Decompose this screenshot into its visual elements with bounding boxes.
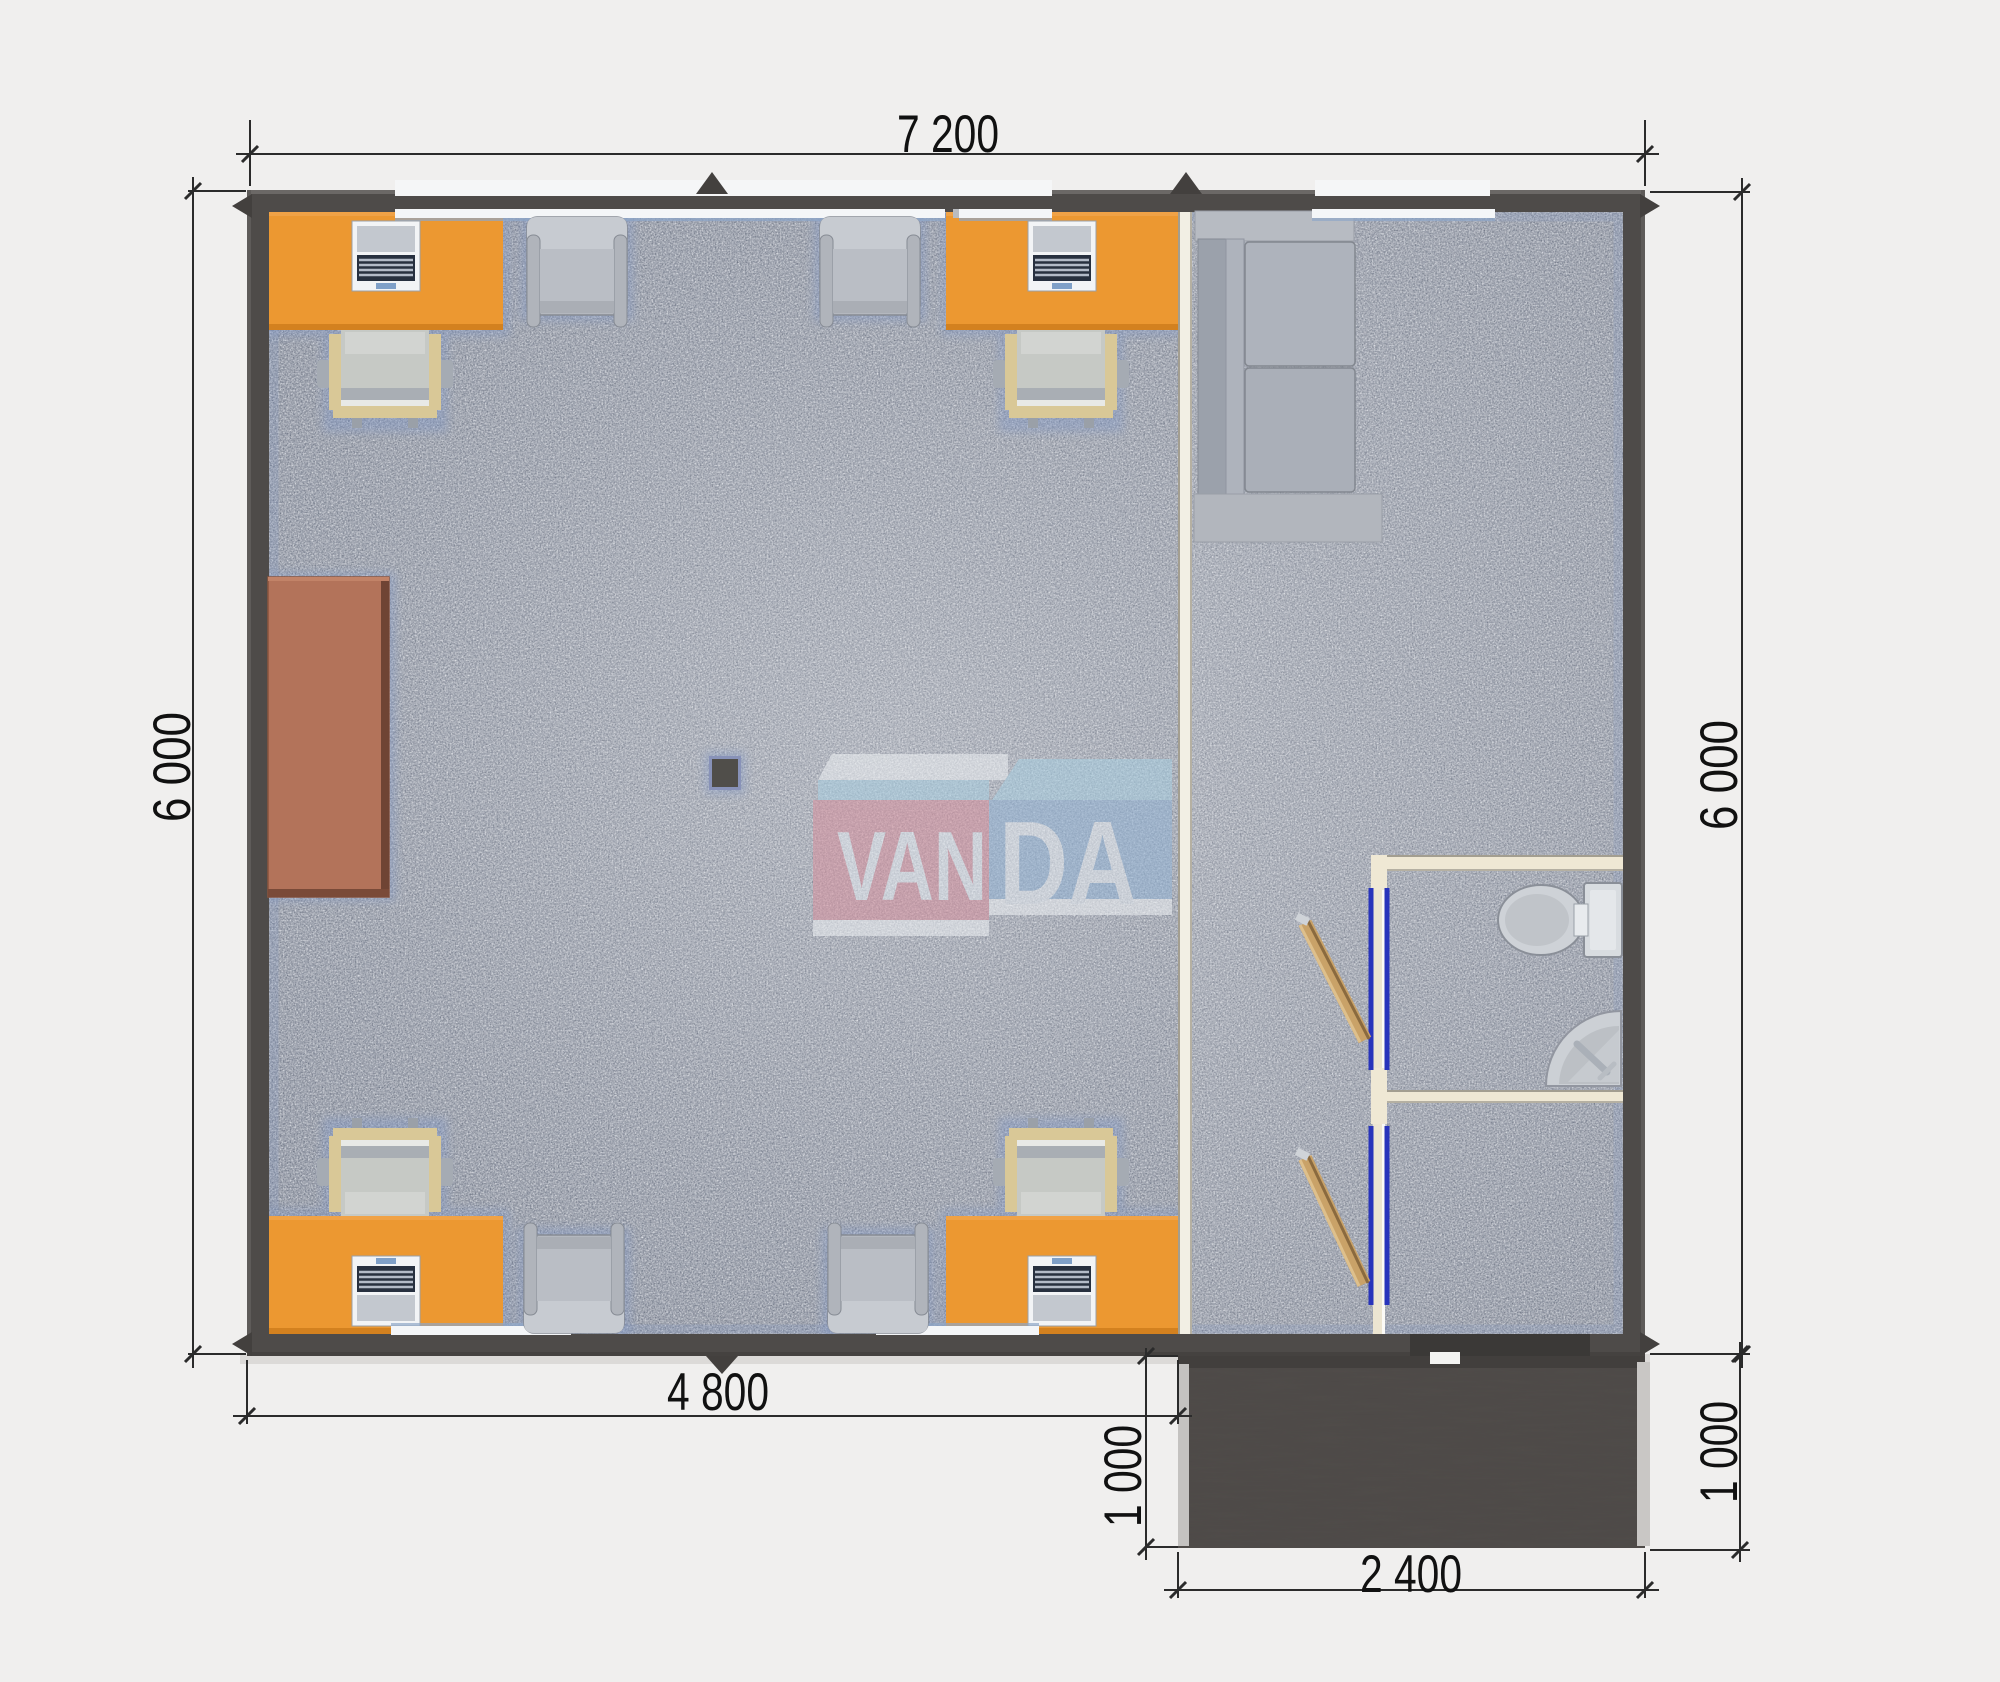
svg-text:VAN: VAN <box>837 811 987 921</box>
svg-text:1 000: 1 000 <box>1094 1425 1153 1527</box>
svg-text:6 000: 6 000 <box>143 712 202 822</box>
svg-text:2 400: 2 400 <box>1360 1545 1462 1604</box>
svg-text:DA: DA <box>999 797 1137 930</box>
svg-text:4 800: 4 800 <box>667 1363 769 1422</box>
svg-text:1 000: 1 000 <box>1690 1401 1749 1503</box>
svg-text:6 000: 6 000 <box>1690 720 1749 830</box>
svg-text:7 200: 7 200 <box>897 105 999 164</box>
